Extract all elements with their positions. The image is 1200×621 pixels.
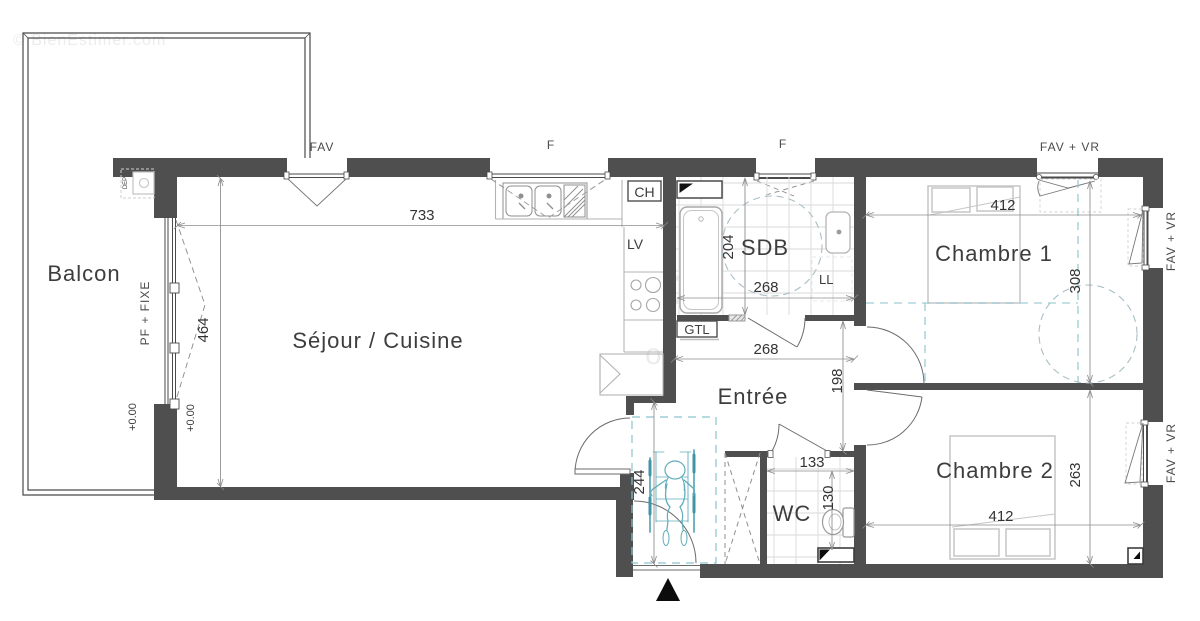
- svg-text:Entrée: Entrée: [718, 384, 789, 409]
- svg-text:733: 733: [409, 207, 434, 224]
- svg-text:268: 268: [753, 279, 778, 296]
- svg-text:244: 244: [631, 469, 648, 494]
- svg-text:Chambre 2: Chambre 2: [936, 458, 1054, 483]
- svg-text:DEP: DEP: [123, 177, 129, 189]
- svg-text:WC: WC: [773, 501, 812, 526]
- svg-text:FAV + VR: FAV + VR: [1164, 423, 1178, 483]
- svg-text:Séjour / Cuisine: Séjour / Cuisine: [292, 328, 463, 353]
- svg-text:268: 268: [753, 341, 778, 358]
- svg-text:Balcon: Balcon: [47, 261, 120, 286]
- svg-text:308: 308: [1067, 268, 1084, 293]
- svg-text:198: 198: [829, 368, 846, 393]
- svg-text:Chambre 1: Chambre 1: [935, 241, 1053, 266]
- svg-text:412: 412: [988, 508, 1013, 525]
- svg-text:FAV + VR: FAV + VR: [1040, 140, 1100, 154]
- svg-text:F: F: [779, 137, 787, 151]
- svg-text:133: 133: [799, 454, 824, 471]
- svg-text:+0.00: +0.00: [185, 404, 197, 432]
- svg-text:PF + FIXE: PF + FIXE: [138, 281, 152, 346]
- svg-text:130: 130: [820, 485, 837, 510]
- svg-text:FAV + VR: FAV + VR: [1164, 211, 1178, 271]
- svg-text:464: 464: [195, 317, 212, 342]
- svg-text:263: 263: [1067, 462, 1084, 487]
- svg-text:+0.00: +0.00: [127, 403, 139, 431]
- svg-text:412: 412: [990, 197, 1015, 214]
- svg-text:LL: LL: [819, 272, 833, 287]
- svg-text:FAV: FAV: [310, 140, 335, 154]
- svg-text:F: F: [547, 138, 555, 152]
- svg-text:LV: LV: [627, 236, 644, 252]
- svg-text:204: 204: [720, 234, 737, 259]
- svg-text:GTL: GTL: [684, 322, 709, 337]
- svg-text:© BienEstimer.com: © BienEstimer.com: [13, 32, 166, 49]
- svg-text:SDB: SDB: [741, 235, 789, 260]
- svg-text:CH: CH: [634, 184, 654, 200]
